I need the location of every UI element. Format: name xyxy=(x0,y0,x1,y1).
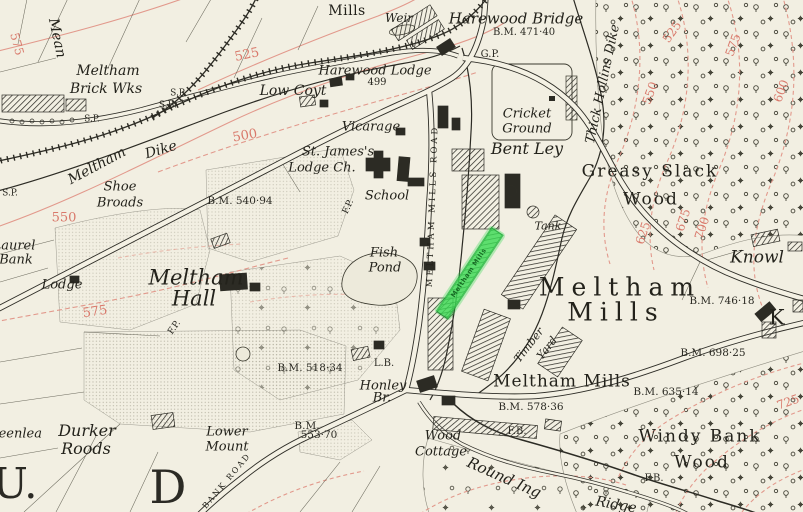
map-label: 550 xyxy=(640,80,659,106)
map-label: Vicarage xyxy=(342,121,400,134)
map-label: Pond xyxy=(369,262,402,275)
map-label: F.B. xyxy=(507,427,526,437)
map-label: Mills xyxy=(328,4,365,18)
map-label: 575 xyxy=(723,32,742,58)
map-label: B.M. 698·25 xyxy=(680,348,745,359)
map-label: Tank xyxy=(535,221,562,232)
map-label: Greasy Slack xyxy=(582,164,719,181)
map-label: S.P. xyxy=(2,190,18,199)
map-label: B.M. 578·36 xyxy=(498,402,563,413)
map-label: B.M. 471·40 xyxy=(493,28,555,38)
map-label: Low Coyt xyxy=(260,84,327,98)
map-label: Harewood Bridge xyxy=(449,12,583,27)
map-label: Thick Hollins Dike xyxy=(584,23,622,145)
map-label: Mills xyxy=(567,300,664,325)
map-label: School xyxy=(365,190,409,203)
map-label: 700 xyxy=(693,215,711,240)
map-label: Brick Wks xyxy=(70,82,142,96)
map-extract: MillsWeirHarewood BridgeB.M. 471·40G.P.H… xyxy=(0,0,803,512)
map-label: Round Ing xyxy=(465,455,543,501)
map-label: Dike xyxy=(143,139,178,161)
map-label: F.B. xyxy=(644,474,663,484)
map-label: Fish xyxy=(370,247,398,260)
map-label: Lower xyxy=(206,426,248,439)
map-label: Meltham xyxy=(539,275,701,300)
map-label: Cricket xyxy=(503,108,551,121)
map-label: 575 xyxy=(8,31,26,56)
map-label: U. xyxy=(0,463,37,505)
map-label: B.M. 540·94 xyxy=(207,196,272,207)
map-label: 500 xyxy=(232,127,259,144)
map-label: Shoe xyxy=(104,181,137,194)
map-label: L.B. xyxy=(374,359,394,369)
map-label: 575 xyxy=(82,304,108,320)
map-label: Br. xyxy=(373,392,391,405)
map-label: BANK ROAD xyxy=(201,452,252,511)
map-label: Wood xyxy=(425,430,461,443)
map-label: Durker xyxy=(58,423,116,439)
map-label: Wood xyxy=(623,192,679,209)
map-label: Lodge xyxy=(42,279,83,292)
map-label: Laurel xyxy=(0,240,35,253)
map-label: MELTHAM MILLS ROAD xyxy=(426,125,440,288)
map-label: Ground xyxy=(502,123,552,136)
map-label: 499 xyxy=(367,78,386,88)
map-label: B.M. 518·34 xyxy=(277,363,342,374)
map-label: Hall xyxy=(172,289,216,310)
map-label: D xyxy=(150,464,187,510)
map-label: F.P. xyxy=(342,198,356,215)
map-label: Bent Ley xyxy=(491,141,563,157)
map-label: Harewood Lodge xyxy=(318,65,431,78)
map-label: F.P. xyxy=(167,319,183,336)
map-label: S.P. xyxy=(84,116,100,125)
label-layer: MillsWeirHarewood BridgeB.M. 471·40G.P.H… xyxy=(0,0,803,512)
map-label: Roods xyxy=(61,441,111,457)
map-label: 550 xyxy=(52,212,77,225)
map-label: Knowl xyxy=(730,250,784,267)
map-label: Cottage xyxy=(415,446,467,459)
map-label: Meltham xyxy=(76,64,139,78)
map-label: St. James's xyxy=(302,146,374,159)
map-label: S.P. xyxy=(170,90,186,99)
map-label: Meltham Mills xyxy=(450,247,488,299)
map-label: Weir xyxy=(385,12,413,24)
map-label: Greenlea xyxy=(0,428,42,441)
map-label: Wood xyxy=(674,455,730,472)
map-label: Broads xyxy=(97,197,143,210)
map-label: Bank xyxy=(0,254,33,267)
map-label: Mean xyxy=(46,17,68,59)
map-label: Ridge xyxy=(594,495,637,512)
map-label: 553·70 xyxy=(301,430,338,441)
map-label: Lodge Ch. xyxy=(288,162,355,175)
map-label: Mount xyxy=(205,441,248,454)
map-label: Windy Bank xyxy=(638,429,761,446)
map-label: Meltham xyxy=(148,268,243,289)
map-label: S.B. xyxy=(159,102,177,111)
map-label: 525 xyxy=(661,19,684,45)
map-label: 625 xyxy=(634,220,652,245)
map-label: G.P. xyxy=(481,50,500,60)
map-label: 725 xyxy=(775,392,801,411)
map-label: 600 xyxy=(771,78,790,104)
map-label: B.M. 635·14 xyxy=(633,387,698,398)
map-label: 675 xyxy=(674,207,692,232)
map-label: Meltham Mills xyxy=(493,374,631,391)
map-label: K xyxy=(769,308,785,329)
map-label: 525 xyxy=(234,46,261,64)
